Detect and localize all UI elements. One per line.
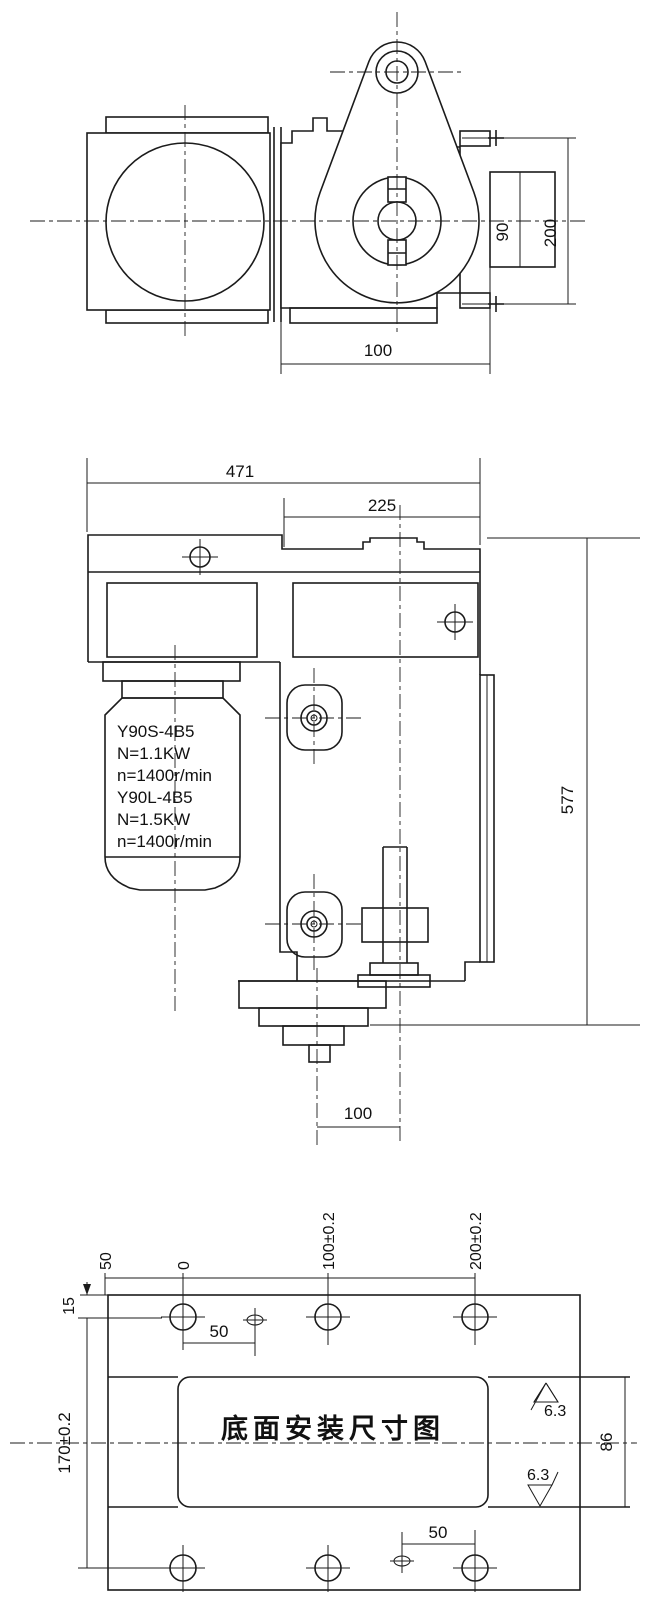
dim-86: 86 [597, 1433, 616, 1452]
top-view: 90 200 100 [30, 12, 585, 374]
dim-577: 577 [558, 786, 577, 814]
dim-90: 90 [493, 223, 512, 242]
base-step-1 [239, 981, 386, 1008]
top-view-motor-box [87, 133, 270, 310]
dim-170: 170±0.2 [55, 1412, 74, 1473]
motor-flange-2 [122, 681, 223, 698]
roughness-symbol-lower: 6.3 [527, 1467, 558, 1506]
motor-label: Y90S-4B5 N=1.1KW n=1400r/min Y90L-4B5 N=… [117, 722, 212, 851]
bearing-boss-upper [287, 685, 342, 750]
ordinate-label-200: 200±0.2 [468, 1212, 485, 1270]
shaft-flange-1 [370, 963, 418, 975]
dim-15: 15 [61, 1297, 78, 1315]
dim-50-lower: 50 [429, 1523, 448, 1542]
roughness-symbol-upper: 6.3 [531, 1383, 566, 1420]
motor-label-line: n=1400r/min [117, 766, 212, 785]
motor-label-line: N=1.1KW [117, 744, 190, 763]
bottom-view: 底面安装尺寸图 50 0 100±0.2 2 [10, 1212, 637, 1592]
dim-100-top-view: 100 [364, 341, 392, 360]
panel-left-edge [280, 662, 297, 981]
front-body-outline [88, 535, 480, 675]
motor-label-line: Y90S-4B5 [117, 722, 195, 741]
dim-50-upper: 50 [210, 1322, 229, 1341]
front-view: Y90S-4B5 N=1.1KW n=1400r/min Y90L-4B5 N=… [87, 458, 640, 1145]
ordinate-label-0: 0 [176, 1261, 193, 1270]
ordinate-label-50: 50 [98, 1252, 115, 1270]
motor-flange-1 [103, 662, 240, 681]
ordinate-label-100: 100±0.2 [321, 1212, 338, 1270]
dim-200: 200 [541, 219, 560, 247]
front-window-right [293, 583, 478, 657]
view-title: 底面安装尺寸图 [221, 1413, 445, 1444]
base-nub [309, 1045, 330, 1062]
top-view-left-flange-upper [106, 117, 268, 133]
base-step-2 [259, 1008, 368, 1026]
roughness-value-upper: 6.3 [544, 1403, 566, 1420]
top-view-left-flange-lower [106, 310, 268, 323]
top-view-ear-lower [460, 293, 490, 308]
dim-100-front-view: 100 [344, 1104, 372, 1123]
datum-point-lower [390, 1549, 414, 1573]
dim-225: 225 [368, 496, 396, 515]
top-view-bottom-flange [290, 308, 437, 323]
dim-471: 471 [226, 462, 254, 481]
front-window-left [107, 583, 257, 657]
motor-label-line: Y90L-4B5 [117, 788, 193, 807]
motor-label-line: N=1.5KW [117, 810, 190, 829]
base-step-3 [283, 1026, 344, 1045]
roughness-value-lower: 6.3 [527, 1467, 549, 1484]
motor-label-line: n=1400r/min [117, 832, 212, 851]
roller [362, 908, 428, 942]
engineering-drawing-sheet: 90 200 100 Y90S- [0, 0, 650, 1619]
bearing-boss-lower [287, 892, 342, 957]
